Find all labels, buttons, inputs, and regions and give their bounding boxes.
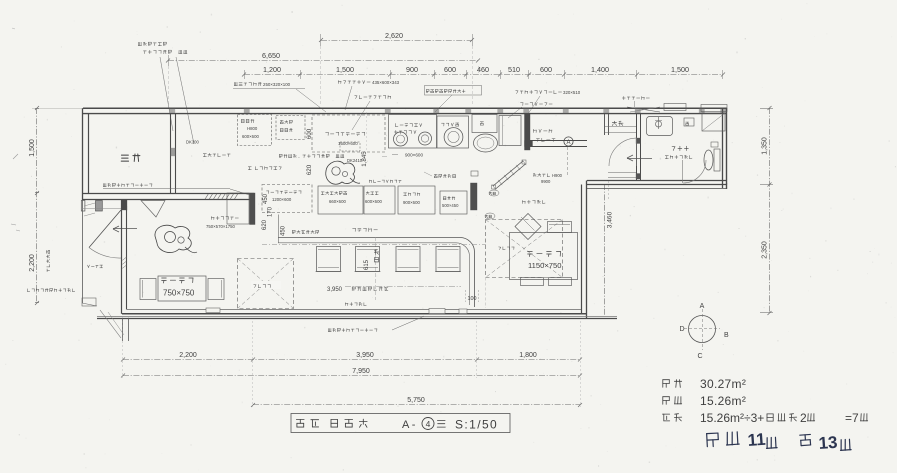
svg-text:2,200: 2,200 bbox=[29, 254, 36, 272]
svg-text:900×600: 900×600 bbox=[405, 153, 423, 158]
svg-text:620: 620 bbox=[306, 164, 313, 175]
svg-text:1,200: 1,200 bbox=[263, 65, 281, 74]
svg-text:250×320×100: 250×320×100 bbox=[263, 82, 291, 87]
svg-text:3,950: 3,950 bbox=[356, 352, 374, 359]
svg-text:320×510: 320×510 bbox=[563, 90, 581, 95]
svg-text:2: 2 bbox=[800, 411, 807, 425]
svg-text:D: D bbox=[679, 326, 684, 333]
svg-text:S:1/50: S:1/50 bbox=[455, 418, 498, 432]
svg-text:7,950: 7,950 bbox=[352, 368, 370, 375]
svg-text:900×600: 900×600 bbox=[403, 200, 420, 205]
svg-text:3,460: 3,460 bbox=[607, 211, 614, 228]
svg-text:15.26m²÷3+: 15.26m²÷3+ bbox=[700, 411, 764, 425]
svg-text:1,500: 1,500 bbox=[29, 139, 36, 157]
svg-text:1,400: 1,400 bbox=[591, 65, 609, 74]
svg-text:1,350: 1,350 bbox=[762, 137, 769, 155]
svg-text:5,750: 5,750 bbox=[407, 397, 425, 404]
svg-text:4: 4 bbox=[426, 419, 431, 429]
svg-text:H900: H900 bbox=[552, 173, 563, 178]
svg-text:6,650: 6,650 bbox=[262, 51, 280, 60]
svg-text:C: C bbox=[697, 353, 702, 360]
svg-text:1,500: 1,500 bbox=[336, 65, 354, 74]
svg-text:A -: A - bbox=[402, 419, 416, 431]
svg-text:900: 900 bbox=[406, 65, 418, 74]
svg-text:170: 170 bbox=[268, 206, 274, 217]
svg-text:1,500: 1,500 bbox=[671, 65, 689, 74]
svg-text:600: 600 bbox=[444, 65, 456, 74]
svg-text:615: 615 bbox=[364, 259, 370, 270]
svg-text:30.27m²: 30.27m² bbox=[700, 377, 746, 391]
svg-text:1,845: 1,845 bbox=[361, 151, 368, 167]
svg-text:660×600: 660×600 bbox=[329, 199, 346, 204]
svg-text:620: 620 bbox=[262, 219, 268, 230]
svg-text:450: 450 bbox=[281, 225, 287, 236]
svg-text:600×600: 600×600 bbox=[242, 134, 259, 139]
svg-text:2,350: 2,350 bbox=[762, 241, 769, 259]
svg-text:1,800: 1,800 bbox=[519, 352, 537, 359]
svg-text:11: 11 bbox=[747, 430, 766, 450]
svg-text:3,950: 3,950 bbox=[327, 287, 343, 293]
svg-text:13: 13 bbox=[818, 433, 838, 453]
svg-text:1150×750: 1150×750 bbox=[528, 261, 561, 270]
svg-text:1200×600: 1200×600 bbox=[272, 197, 292, 202]
svg-text:750×750: 750×750 bbox=[163, 289, 195, 298]
svg-text:H800: H800 bbox=[247, 126, 258, 131]
svg-text:A: A bbox=[700, 303, 705, 310]
svg-text:B: B bbox=[724, 332, 729, 339]
svg-text:2,620: 2,620 bbox=[385, 31, 403, 40]
svg-text:435×600×343: 435×600×343 bbox=[372, 80, 400, 85]
svg-text:2,200: 2,200 bbox=[179, 352, 197, 359]
svg-text:500×450: 500×450 bbox=[442, 203, 459, 208]
svg-text:15.26m²: 15.26m² bbox=[700, 394, 746, 408]
svg-text:460: 460 bbox=[477, 65, 489, 74]
svg-text:9900: 9900 bbox=[541, 179, 551, 184]
svg-text:510: 510 bbox=[508, 65, 520, 74]
svg-text:450: 450 bbox=[263, 193, 269, 204]
svg-text:100: 100 bbox=[468, 296, 477, 302]
svg-text:600: 600 bbox=[540, 65, 552, 74]
svg-text:600×600: 600×600 bbox=[365, 199, 382, 204]
svg-text:750×570×1750: 750×570×1750 bbox=[206, 224, 236, 229]
svg-text:DK300: DK300 bbox=[186, 140, 199, 145]
svg-text:=7: =7 bbox=[845, 411, 859, 425]
